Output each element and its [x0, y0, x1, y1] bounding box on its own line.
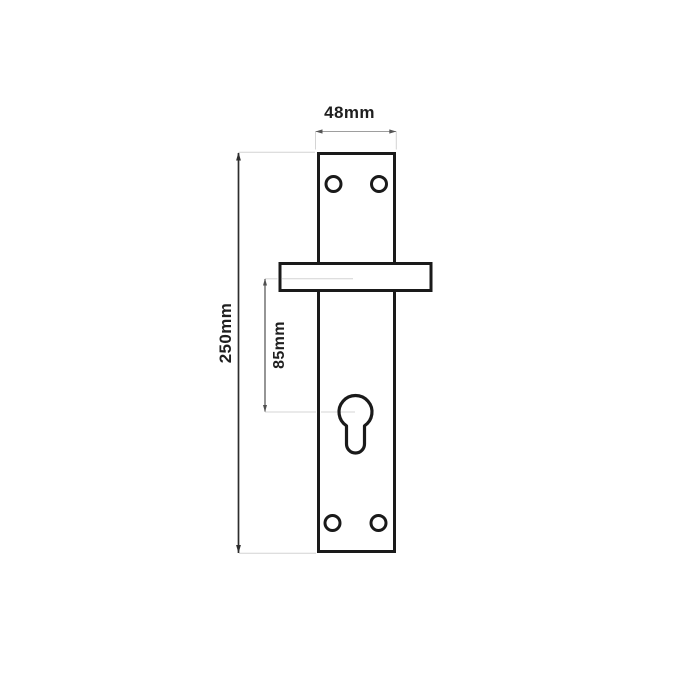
- height-dimension-label: 250mm: [216, 303, 236, 364]
- arrowhead-up-icon: [236, 152, 241, 160]
- handle-stem-section: [280, 264, 431, 291]
- screw-hole-top-right: [372, 177, 387, 192]
- arrowhead-down-icon: [236, 545, 241, 553]
- screw-hole-bottom-left: [325, 516, 340, 531]
- arrowhead-up-small-icon: [263, 279, 267, 286]
- arrowhead-right-icon: [389, 129, 396, 133]
- backplate-outline: [319, 154, 395, 552]
- screw-hole-bottom-right: [371, 516, 386, 531]
- euro-cylinder-keyhole: [339, 395, 372, 453]
- arrowhead-left-icon: [316, 129, 323, 133]
- arrowhead-down-small-icon: [263, 405, 267, 412]
- offset-dimension-label: 85mm: [271, 321, 289, 369]
- screw-hole-top-left: [326, 177, 341, 192]
- drawing-canvas: 48mm 250mm 85mm: [0, 0, 700, 700]
- width-dimension-label: 48mm: [324, 103, 375, 123]
